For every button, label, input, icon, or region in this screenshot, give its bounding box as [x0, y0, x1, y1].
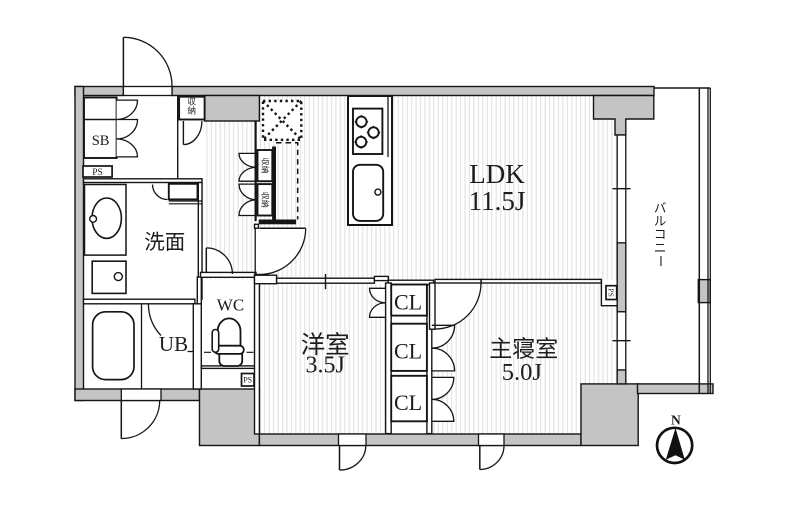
- svg-text:PS: PS: [607, 288, 616, 296]
- svg-text:CL: CL: [394, 290, 422, 315]
- svg-text:11.5J: 11.5J: [469, 186, 526, 216]
- svg-text:ニ: ニ: [654, 241, 667, 255]
- svg-text:ー: ー: [653, 255, 667, 268]
- svg-text:WC: WC: [217, 296, 244, 315]
- svg-text:PS: PS: [92, 168, 103, 178]
- svg-text:収納: 収納: [261, 192, 271, 208]
- svg-text:CL: CL: [394, 390, 422, 415]
- svg-text:洗面: 洗面: [144, 231, 185, 254]
- svg-text:LDK: LDK: [469, 159, 525, 189]
- svg-text:ル: ル: [654, 215, 667, 229]
- svg-text:納: 納: [188, 106, 197, 116]
- svg-text:収納: 収納: [260, 158, 270, 174]
- svg-text:コ: コ: [654, 228, 667, 242]
- svg-text:UB: UB: [159, 332, 188, 356]
- svg-text:CL: CL: [394, 339, 422, 364]
- svg-text:PS: PS: [243, 376, 252, 385]
- svg-text:3.5J: 3.5J: [306, 353, 345, 379]
- svg-text:主寝室: 主寝室: [489, 337, 558, 362]
- svg-text:バ: バ: [654, 202, 667, 216]
- svg-text:SB: SB: [92, 133, 110, 149]
- svg-text:N: N: [671, 413, 681, 428]
- svg-text:5.0J: 5.0J: [502, 359, 543, 386]
